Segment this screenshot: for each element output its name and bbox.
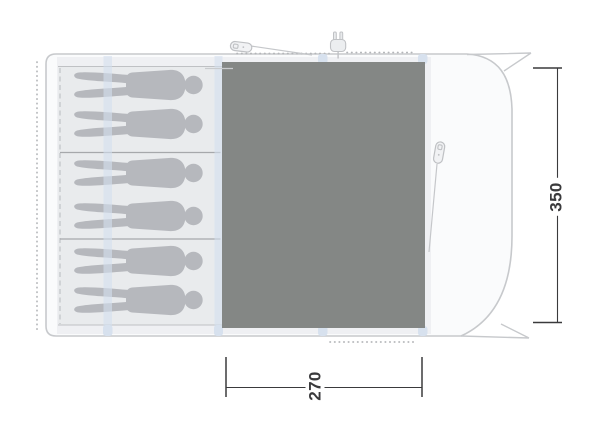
peg-icon — [230, 41, 252, 53]
pole-foot — [214, 325, 223, 336]
pole-stripe — [104, 56, 113, 330]
pole-foot — [103, 325, 113, 336]
floorplan-canvas — [0, 0, 600, 428]
sleeping-area — [58, 67, 222, 326]
pole-stripe — [215, 56, 223, 330]
groundsheet — [222, 62, 425, 328]
depth-dimension-label: 350 — [547, 178, 566, 216]
width-dimension-label: 270 — [306, 367, 325, 405]
tent-floorplan-diagram: 350 270 — [0, 0, 600, 428]
